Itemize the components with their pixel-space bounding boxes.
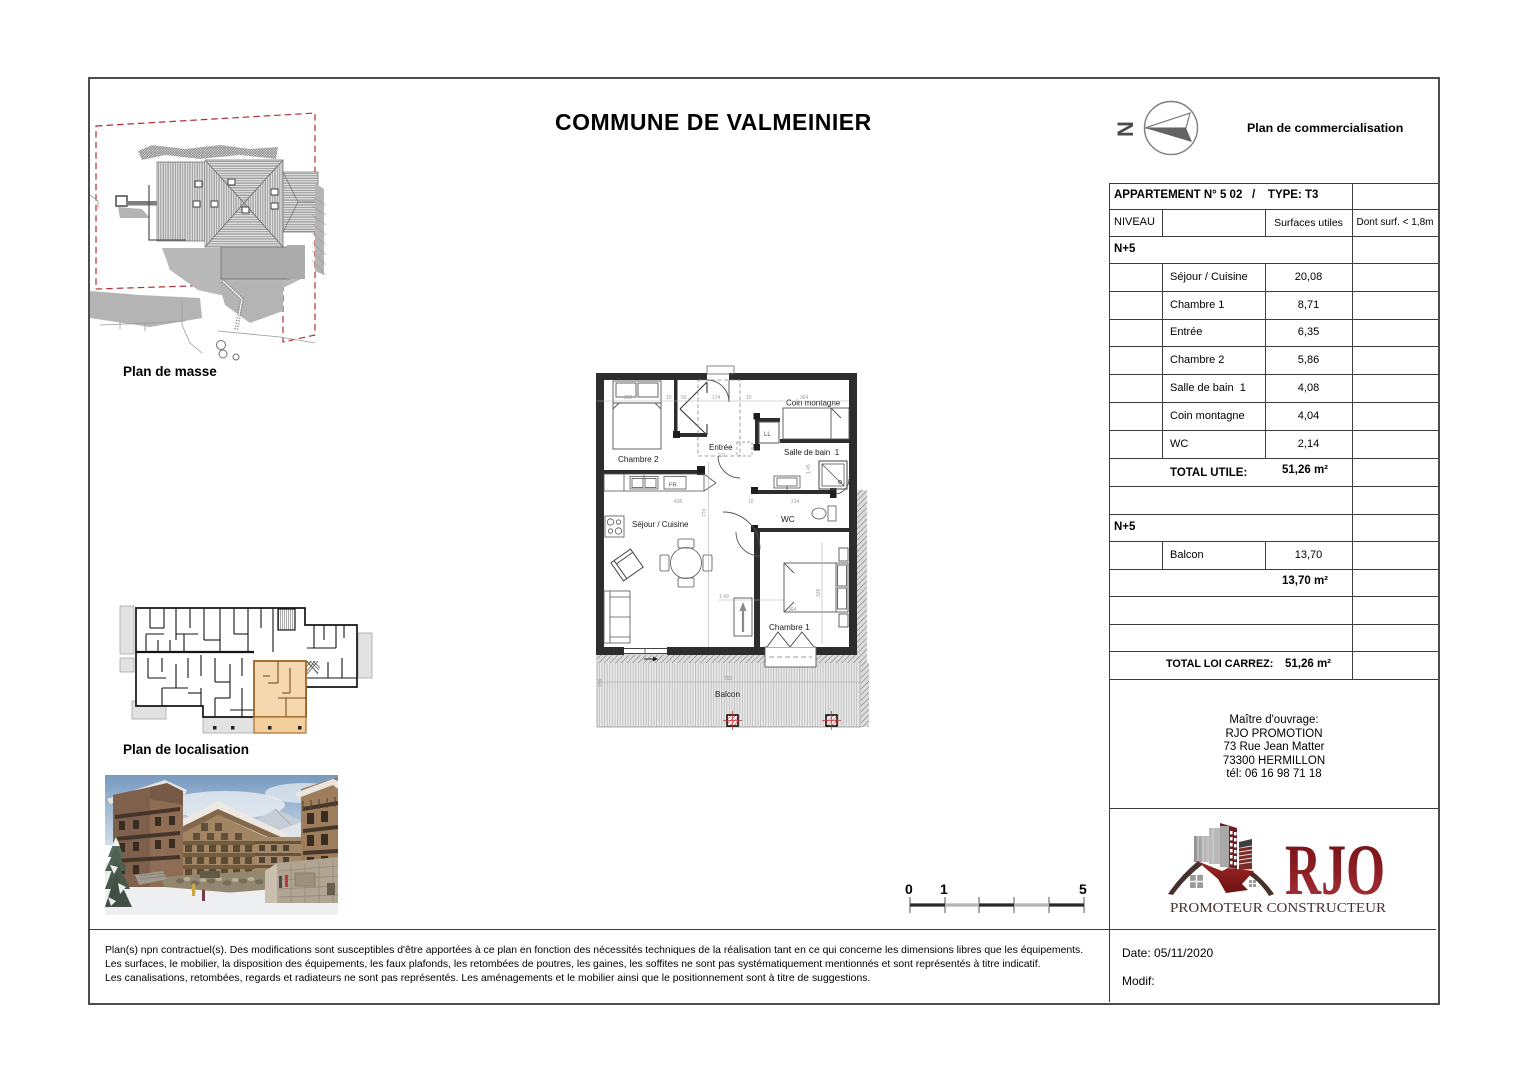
svg-text:202: 202 xyxy=(624,395,633,401)
svg-text:50: 50 xyxy=(681,395,687,401)
svg-text:Entrée: Entrée xyxy=(709,443,733,452)
svg-text:364: 364 xyxy=(788,607,797,613)
svg-text:5: 5 xyxy=(1079,881,1087,897)
svg-text:214: 214 xyxy=(791,499,800,505)
svg-text:2,0: 2,0 xyxy=(718,453,725,459)
svg-text:FR: FR xyxy=(669,483,677,489)
svg-text:WC: WC xyxy=(781,515,795,524)
svg-text:10: 10 xyxy=(748,499,754,505)
svg-text:PROMOTEUR CONSTRUCTEUR: PROMOTEUR CONSTRUCTEUR xyxy=(1170,901,1387,916)
svg-text:1: 1 xyxy=(940,881,948,897)
svg-text:Coin montagne: Coin montagne xyxy=(786,399,841,408)
svg-text:Chambre 2: Chambre 2 xyxy=(618,455,659,464)
svg-text:10: 10 xyxy=(746,395,752,401)
svg-text:326: 326 xyxy=(816,588,822,597)
svg-text:174: 174 xyxy=(712,395,721,401)
svg-text:Salle de bain 1: Salle de bain 1 xyxy=(784,448,840,457)
svg-text:150: 150 xyxy=(598,678,604,687)
svg-text:1,49: 1,49 xyxy=(719,594,729,600)
svg-text:750: 750 xyxy=(724,676,733,682)
svg-text:0: 0 xyxy=(905,881,913,897)
svg-text:LL: LL xyxy=(764,432,771,438)
svg-text:364: 364 xyxy=(800,395,809,401)
svg-text:1,45: 1,45 xyxy=(806,464,812,474)
svg-text:770: 770 xyxy=(702,508,708,517)
svg-text:Séjour / Cuisine: Séjour / Cuisine xyxy=(632,520,689,529)
svg-text:Chambre 1: Chambre 1 xyxy=(769,623,810,632)
svg-text:10: 10 xyxy=(666,395,672,401)
svg-text:RJO: RJO xyxy=(1285,830,1385,910)
svg-text:436: 436 xyxy=(674,499,683,505)
svg-text:Balcon: Balcon xyxy=(715,690,740,699)
